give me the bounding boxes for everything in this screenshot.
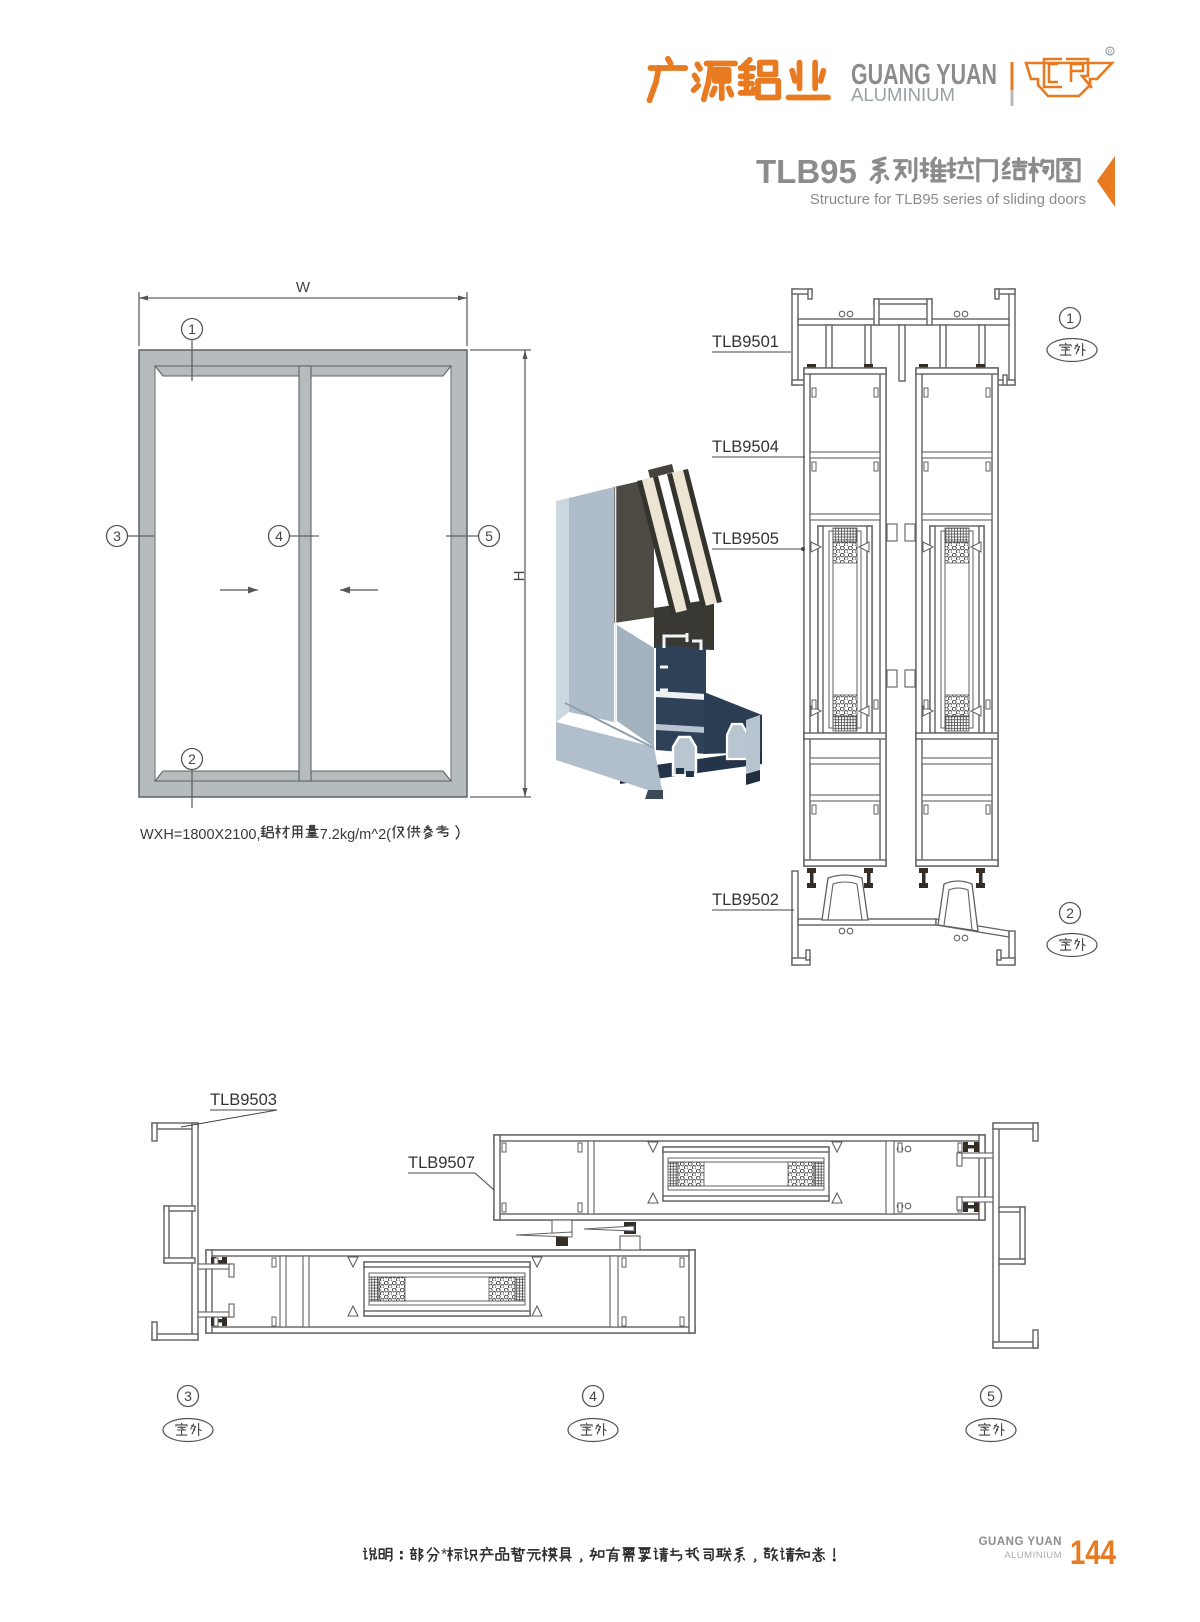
svg-text:5: 5 [485, 528, 493, 544]
svg-text:TLB9507: TLB9507 [408, 1154, 475, 1172]
svg-text:3: 3 [113, 528, 121, 544]
svg-text:4: 4 [275, 528, 283, 544]
svg-text:1: 1 [1066, 310, 1074, 326]
svg-text:5: 5 [987, 1388, 995, 1404]
svg-text:ALUMINIUM: ALUMINIUM [1004, 1550, 1062, 1561]
svg-text:GUANG YUAN: GUANG YUAN [979, 1536, 1062, 1548]
svg-text:7.2kg/m^2(: 7.2kg/m^2( [320, 827, 391, 843]
svg-text:TLB9501: TLB9501 [712, 333, 779, 351]
svg-text:2: 2 [1066, 905, 1074, 921]
svg-text:144: 144 [1070, 1534, 1116, 1572]
svg-text:3: 3 [184, 1388, 192, 1404]
svg-text:WXH=1800X2100,: WXH=1800X2100, [140, 827, 261, 843]
svg-text:TLB9502: TLB9502 [712, 891, 779, 909]
svg-text:1: 1 [188, 321, 196, 337]
svg-text:W: W [296, 279, 311, 296]
svg-text:TLB95: TLB95 [756, 153, 857, 190]
svg-text:TLB9505: TLB9505 [712, 530, 779, 548]
svg-text:H: H [511, 571, 528, 582]
svg-text:4: 4 [589, 1388, 597, 1404]
svg-text:Structure for TLB95 series of: Structure for TLB95 series of sliding do… [810, 192, 1086, 208]
svg-text:*: * [441, 1547, 447, 1564]
svg-text:TLB9503: TLB9503 [210, 1091, 277, 1109]
svg-text:ALUMINIUM: ALUMINIUM [851, 85, 955, 105]
svg-text:2: 2 [188, 751, 196, 767]
svg-text:TLB9504: TLB9504 [712, 438, 779, 456]
svg-text:R: R [1108, 49, 1113, 56]
